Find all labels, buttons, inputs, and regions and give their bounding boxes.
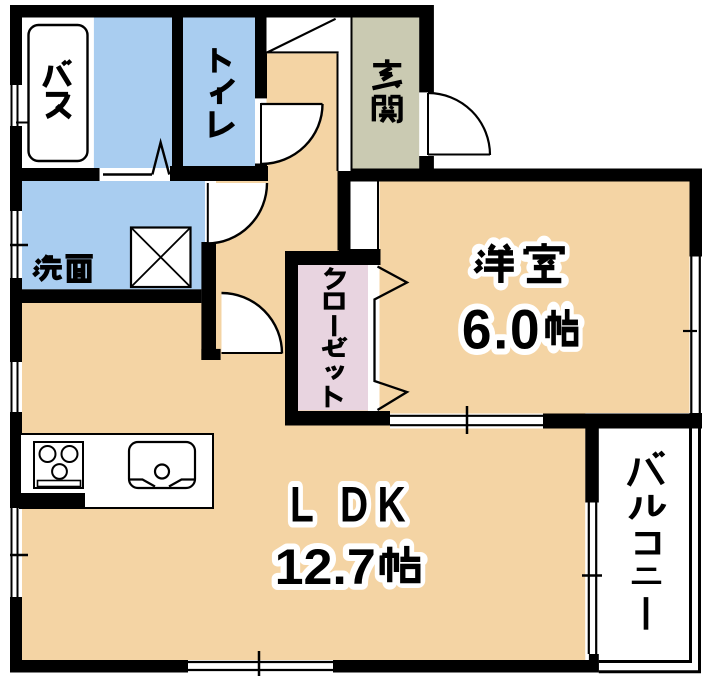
svg-text:6.0: 6.0 (462, 298, 542, 361)
svg-text:L: L (290, 476, 314, 533)
svg-text:12.7: 12.7 (275, 539, 376, 595)
svg-text:D: D (340, 476, 368, 533)
svg-text:K: K (378, 476, 406, 533)
